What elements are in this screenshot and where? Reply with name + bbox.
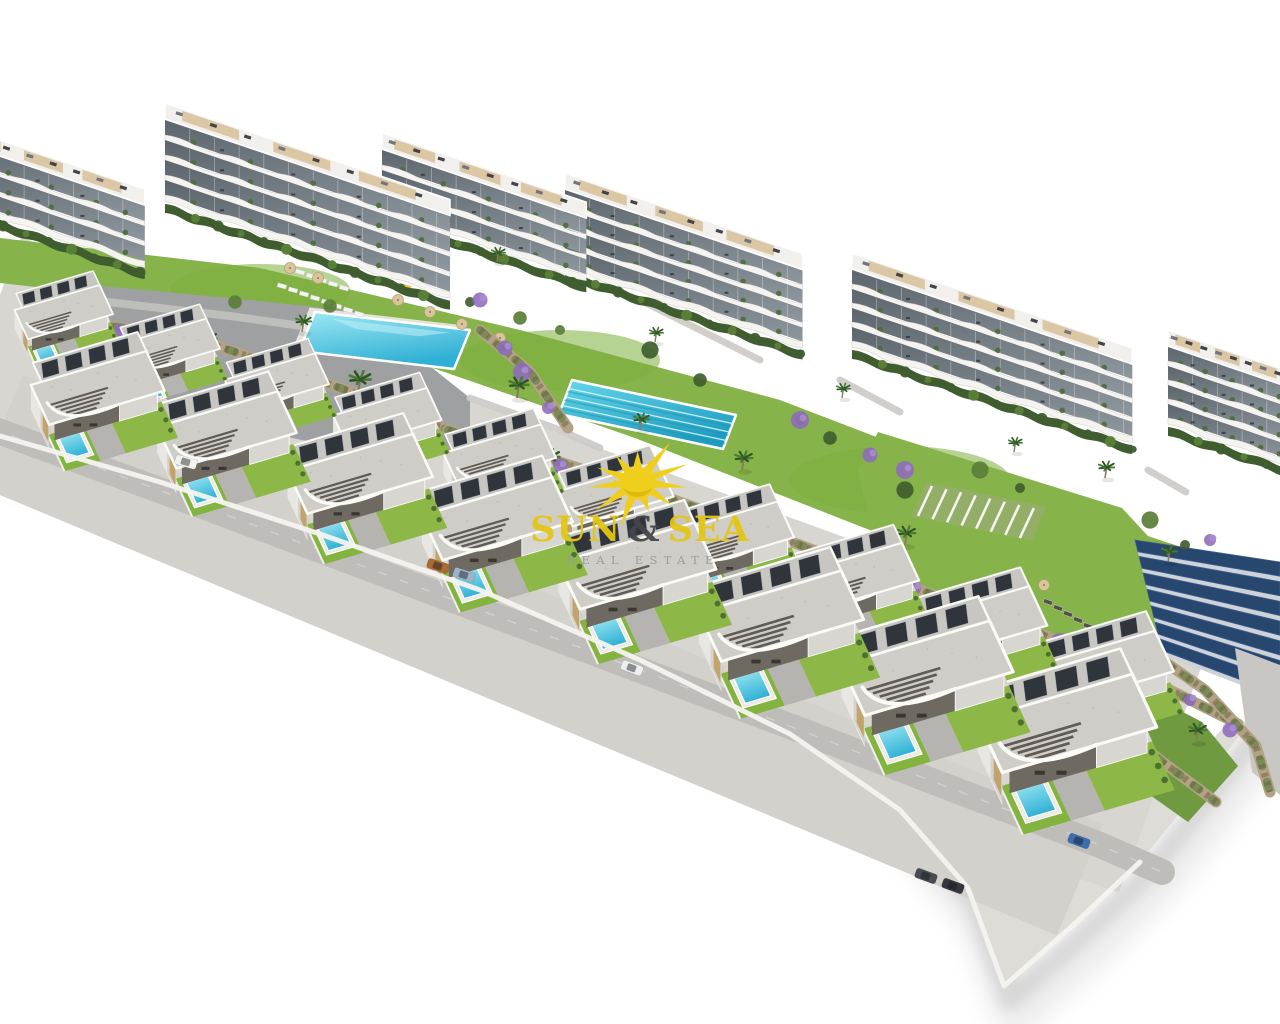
apartment-building — [852, 253, 1137, 454]
render-canvas: SUN&SEA REAL ESTATE — [0, 0, 1280, 1024]
apartment-building — [1168, 330, 1280, 478]
development-render-scene — [0, 0, 1280, 1024]
apartment-building — [565, 173, 805, 360]
